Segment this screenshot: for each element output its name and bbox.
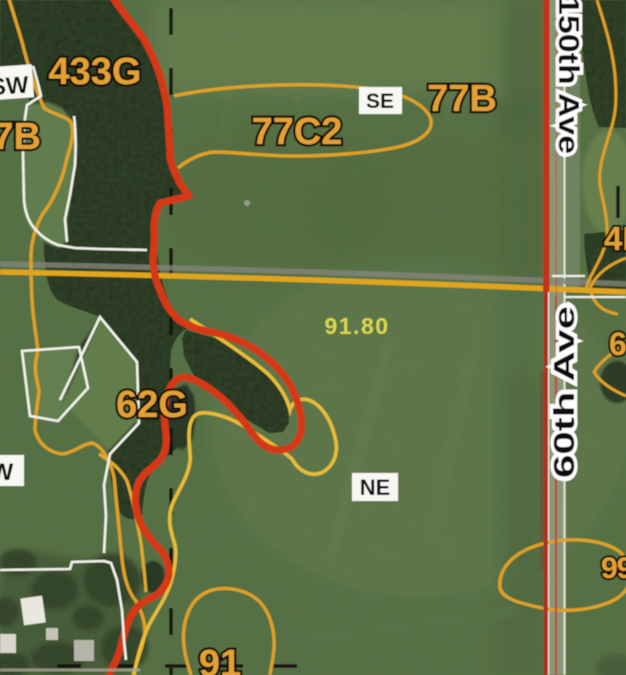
svg-text:NE: NE — [360, 475, 391, 500]
svg-text:62G: 62G — [116, 384, 188, 426]
svg-text:99: 99 — [601, 552, 626, 585]
svg-text:SW: SW — [0, 72, 30, 102]
svg-text:60th Ave: 60th Ave — [549, 306, 581, 478]
svg-text:150th Ave: 150th Ave — [552, 0, 584, 154]
svg-text:77B: 77B — [427, 78, 497, 120]
svg-text:77C2: 77C2 — [252, 111, 343, 153]
svg-text:W: W — [0, 459, 14, 486]
svg-text:77B: 77B — [0, 116, 41, 158]
svg-text:91.80: 91.80 — [324, 313, 389, 339]
svg-text:6: 6 — [609, 326, 626, 362]
svg-text:91: 91 — [199, 643, 241, 675]
svg-text:433G: 433G — [49, 51, 142, 93]
svg-text:4B: 4B — [604, 220, 626, 257]
svg-text:SE: SE — [366, 90, 394, 113]
